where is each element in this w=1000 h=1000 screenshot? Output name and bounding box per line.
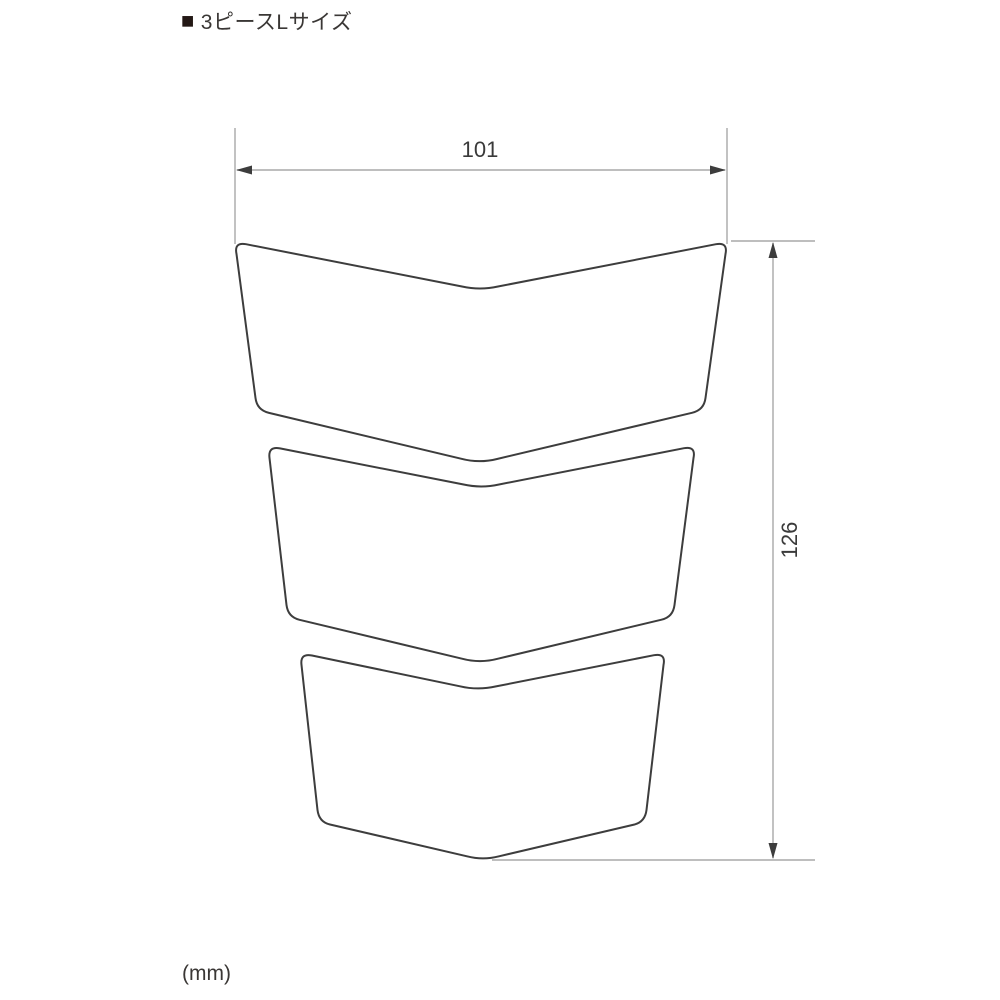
unit-label: (mm)	[182, 962, 231, 986]
tankpad-pieces	[236, 244, 726, 859]
height-dimension-label: 126	[777, 522, 802, 559]
width-dimension: 101	[235, 128, 727, 244]
tankpad-piece-top	[236, 244, 726, 461]
width-arrow-right	[710, 166, 726, 175]
height-arrow-bottom	[769, 843, 778, 859]
width-arrow-left	[236, 166, 252, 175]
diagram-canvas: ■ 3ピースLサイズ 101 126 (mm)	[0, 0, 1000, 1000]
height-dimension: 126	[492, 241, 815, 860]
tankpad-piece-bottom	[301, 655, 664, 859]
height-arrow-top	[769, 242, 778, 258]
tankpad-piece-middle	[269, 448, 694, 661]
tankpad-dimension-drawing: 101 126	[0, 0, 1000, 1000]
width-dimension-label: 101	[462, 137, 499, 162]
